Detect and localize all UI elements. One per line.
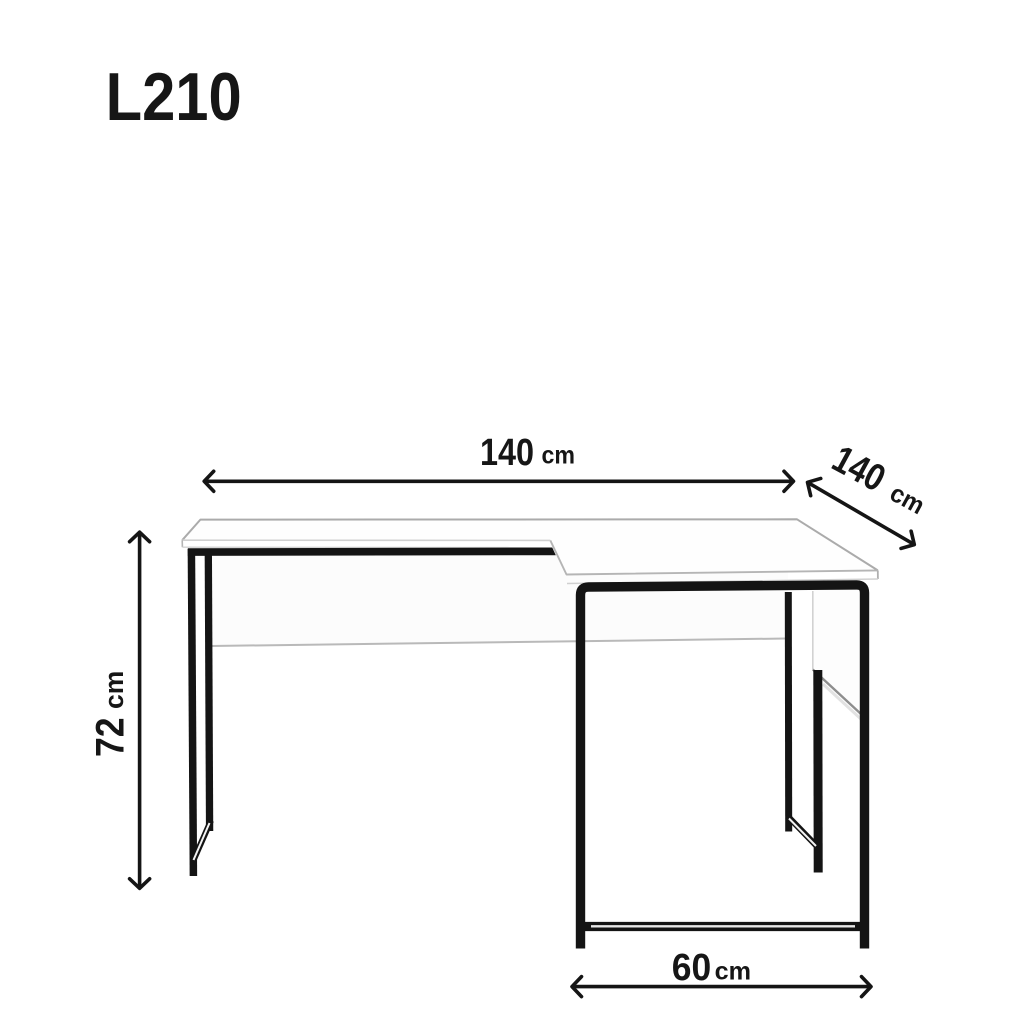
svg-text:72: 72 <box>88 717 132 757</box>
svg-text:cm: cm <box>542 442 575 470</box>
svg-text:cm: cm <box>715 957 751 985</box>
svg-text:140: 140 <box>480 432 534 474</box>
svg-text:60: 60 <box>672 946 711 988</box>
svg-text:L210: L210 <box>106 59 242 135</box>
svg-text:cm: cm <box>99 671 129 709</box>
